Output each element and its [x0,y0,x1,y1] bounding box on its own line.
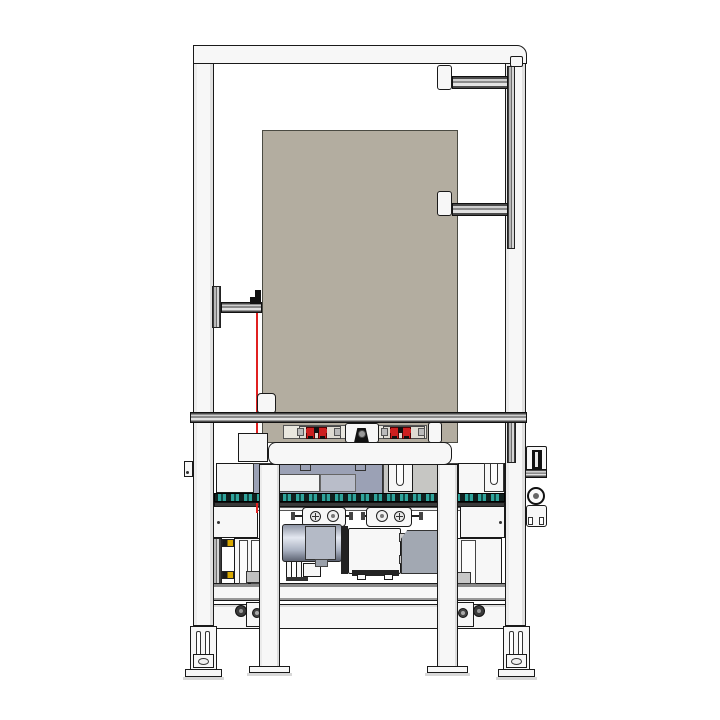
guide-slot-right [490,464,498,485]
right-guide-bracket [456,572,471,584]
knob-left-b-dot [331,514,335,518]
outboard-bracket-slot-inner [535,452,538,467]
knob-rod-left-cap-a [291,512,295,520]
outer-right-base-plate [498,669,535,677]
right-clamp-foot-b [404,436,409,439]
right-clamp-center-block [398,427,403,433]
left-roller-large-hub [239,609,243,613]
outer-left-foot-oval [198,658,209,665]
conveyor-chain [214,493,505,502]
inner-right-foot [427,666,468,673]
knob-left-a-cross-v [315,513,316,520]
knob-rod-right-cap-a [361,512,365,520]
carton-blank-panel [262,130,458,443]
conveyor-housing-block [320,474,356,492]
right-vertical-rail-lower [507,422,516,463]
left-clamp-center-block [314,427,319,433]
outboard-mount-slot-b [539,517,544,525]
sensor-beam-line-lower [256,503,258,513]
outer-left-base-shadow [183,677,224,680]
right-clamp-tab-outer [418,428,425,436]
left-clamp-foot-a [308,436,313,439]
outer-right-base-shadow [496,677,537,680]
inner-right-foot-shadow [425,673,470,676]
inner-left-foot-shadow [247,673,292,676]
main-crossbeam [268,442,452,465]
clamp-row-end-tab [428,422,442,443]
main-horizontal-beam [190,412,527,423]
motor-support-base [286,577,308,581]
left-sensor-yellow-top [222,539,234,547]
guide-slot-left [396,463,404,486]
right-roller-large-hub [477,609,481,613]
knob-rod-left-cap-b [349,512,353,520]
panel-guide-tab-left [257,393,276,414]
right-side-panel-dot [499,521,502,524]
knob-right-a-dot [380,514,384,518]
inner-left-leg [259,464,280,668]
motor-face-plate [305,526,336,560]
right-crossbar-mid [452,203,508,216]
knob-rod-right-cap-b [419,512,423,520]
right-roller-small-hub [461,611,465,615]
inner-right-leg [437,464,458,668]
outboard-roller-hub [533,493,539,499]
motor-coupling [341,526,348,574]
left-clamp-foot-b [320,436,325,439]
crossbeam-left-block [238,433,268,462]
left-side-panel-dot [217,521,220,524]
left-clamp-tab-outer [297,428,304,436]
inner-left-foot [249,666,290,673]
left-clamp-tab-inner [334,428,341,436]
cad-drawing-canvas [0,0,720,720]
right-vertical-rail [507,66,515,249]
knob-right-b-cross-v [399,513,400,520]
right-clamp-foot-a [392,436,397,439]
frame-left-post [193,63,214,626]
gearbox-foot-a [357,574,366,580]
gearbox-housing [348,528,401,574]
outboard-mount-slot-a [528,517,533,525]
left-sensor-yellow-bottom [222,571,234,579]
center-cam-roller [358,430,366,438]
knob-plate-right [366,507,412,527]
right-rail-mount-tab-top [437,65,452,90]
outer-right-foot-oval [511,658,522,665]
right-crossbar-top [452,76,508,89]
left-outboard-tab [184,461,193,477]
motor-stem [315,559,328,567]
left-sensor-bracket-notch [250,290,255,297]
left-outboard-dot [186,471,189,474]
left-vertical-rail [212,286,221,328]
right-rail-mount-tab-mid [437,191,452,216]
frame-top-beam [193,45,527,64]
right-clamp-tab-inner [381,428,388,436]
frame-top-beam-end-cap [510,56,523,67]
outer-left-base-plate [185,669,222,677]
gearbox-foot-b [384,574,393,580]
